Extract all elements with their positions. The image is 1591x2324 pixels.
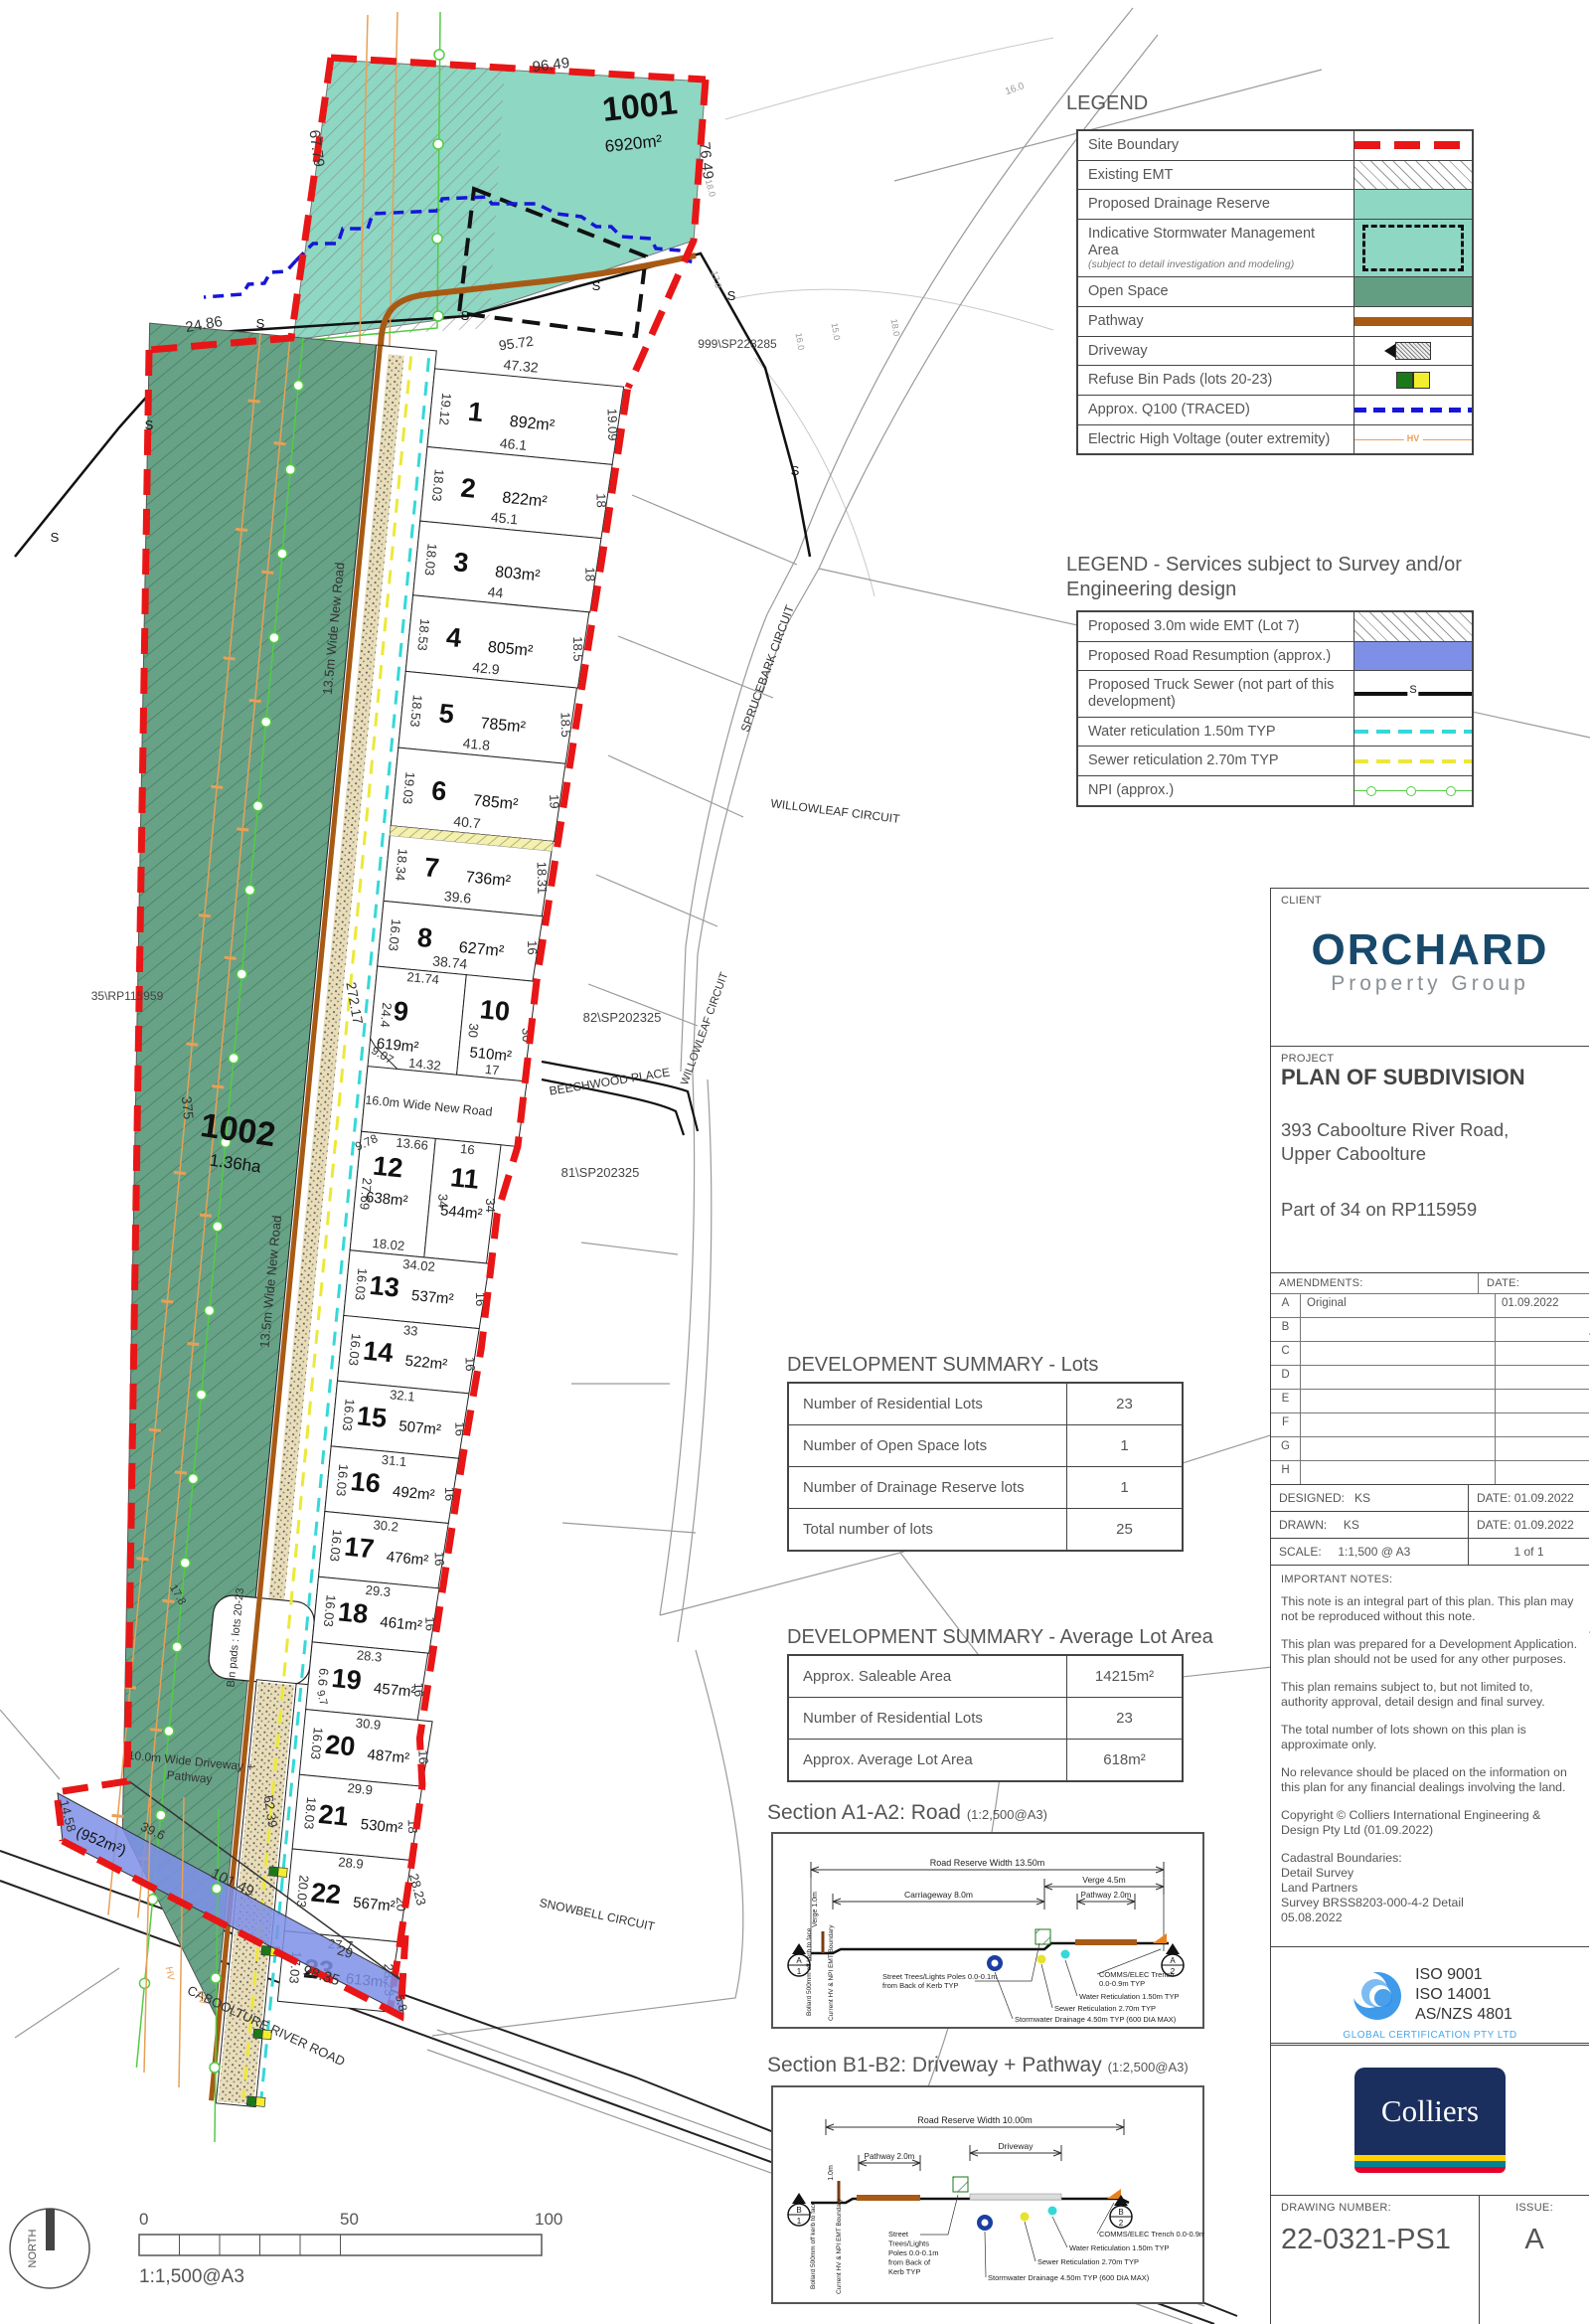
lot-number: 17 bbox=[343, 1532, 376, 1565]
legend-item: Refuse Bin Pads (lots 20-23) bbox=[1078, 365, 1472, 395]
amendment-cell: 01.09.2022 bbox=[1495, 1293, 1589, 1317]
legend-title: LEGEND bbox=[1066, 92, 1148, 115]
legend: Site BoundaryExisting EMTProposed Draina… bbox=[1076, 129, 1474, 455]
note-paragraph: Cadastral Boundaries: Detail Survey Land… bbox=[1281, 1851, 1579, 1925]
legend-item: Water reticulation 1.50m TYP bbox=[1078, 717, 1472, 747]
legend-item: NPI (approx.) bbox=[1078, 775, 1472, 805]
amendments-table: AOriginal01.09.2022BCDEFGH bbox=[1271, 1293, 1589, 1484]
section-dim-label: Carriageway 8.0m bbox=[904, 1890, 973, 1900]
section-marker-letter: B bbox=[796, 2206, 801, 2215]
summary-row-value: 618m² bbox=[1066, 1740, 1182, 1780]
summary-row-value: 23 bbox=[1066, 1384, 1182, 1424]
section-label: Current HV & NPI EMT Boundary bbox=[828, 1924, 835, 2021]
lot-dim-left: 18.03 bbox=[429, 468, 447, 502]
hv-tick bbox=[200, 1215, 212, 1216]
legend-item: Site Boundary bbox=[1078, 131, 1472, 160]
summary-row: Number of Residential Lots23 bbox=[789, 1697, 1182, 1739]
summary-row: Approx. Average Lot Area618m² bbox=[789, 1739, 1182, 1780]
npi-node bbox=[212, 1221, 223, 1232]
lot-dim-bottom: 42.9 bbox=[472, 659, 501, 678]
street-name: WILLOWLEAF CIRCUIT bbox=[679, 970, 730, 1086]
legend-item-label: Electric High Voltage (outer extremity) bbox=[1078, 425, 1353, 454]
section-label: Water Reticulation 1.50m TYP bbox=[1079, 1992, 1179, 2001]
sewer-s-label: S bbox=[145, 417, 154, 432]
driveway-bar bbox=[970, 2194, 1061, 2200]
lot-dim-top: 28.9 bbox=[338, 1854, 365, 1871]
important-notes: This note is an integral part of this pl… bbox=[1281, 1594, 1579, 1925]
npi-node bbox=[155, 1810, 166, 1821]
lot-number: 8 bbox=[416, 922, 434, 953]
lot-dim-bottom: 44 bbox=[487, 583, 504, 600]
npi-node bbox=[172, 1641, 183, 1652]
parcel-label: 81\SP202325 bbox=[561, 1165, 640, 1180]
lot-number: 4 bbox=[445, 622, 463, 653]
legend-item-label: Existing EMT bbox=[1078, 161, 1353, 190]
npi-node bbox=[139, 1978, 150, 1989]
section-dim-label: Pathway 2.0m bbox=[1081, 1891, 1132, 1900]
sewery-swatch bbox=[1353, 747, 1472, 775]
red-dash-swatch bbox=[1353, 131, 1472, 160]
lot-number: 16 bbox=[349, 1466, 382, 1499]
project-address-2: Upper Caboolture bbox=[1281, 1143, 1426, 1164]
npi-node bbox=[180, 1558, 191, 1569]
section-label: Sewer Reticulation 2.70m TYP bbox=[1037, 2257, 1139, 2266]
dimension-label: 95.72 bbox=[498, 333, 535, 354]
lot-number: 18 bbox=[337, 1596, 370, 1629]
npi-node bbox=[268, 632, 279, 643]
contour-label: 16.0 bbox=[794, 332, 807, 351]
section-marker-letter: B bbox=[1118, 2208, 1123, 2217]
lot-dim-left: 19.12 bbox=[436, 393, 454, 426]
section-label: Trees/Lights bbox=[888, 2240, 929, 2248]
sheet-count: 1 of 1 bbox=[1468, 1539, 1589, 1565]
amendment-cell: H bbox=[1271, 1460, 1301, 1484]
npi-node bbox=[293, 380, 304, 391]
lot-number: 14 bbox=[362, 1336, 395, 1369]
legend-item-label: Water reticulation 1.50m TYP bbox=[1078, 718, 1353, 747]
parcel-label: 82\SP202325 bbox=[583, 1010, 662, 1025]
npi-node bbox=[252, 800, 263, 811]
lot-dim-bottom: 39.6 bbox=[443, 888, 472, 907]
summary-lots-title: DEVELOPMENT SUMMARY - Lots bbox=[787, 1354, 1098, 1377]
lot-dim: 13.66 bbox=[396, 1135, 429, 1153]
legend-item-label: Driveway bbox=[1078, 337, 1353, 366]
summary-row-value: 14215m² bbox=[1066, 1656, 1182, 1697]
amendment-cell bbox=[1301, 1389, 1495, 1412]
sewer-s-swatch: S bbox=[1353, 671, 1472, 716]
summary-avg-table: Approx. Saleable Area14215m²Number of Re… bbox=[787, 1654, 1184, 1782]
amendment-cell: A bbox=[1271, 1293, 1301, 1317]
legend-item: Sewer reticulation 2.70m TYP bbox=[1078, 746, 1472, 775]
hv-tick bbox=[161, 1301, 173, 1302]
section-label: from Back of Kerb TYP bbox=[882, 1981, 959, 1990]
section-marker-number: 2 bbox=[1119, 2219, 1124, 2228]
section-dim-label: Driveway bbox=[999, 2141, 1034, 2151]
lot-dim-left: 16.03 bbox=[308, 1727, 326, 1760]
lot-dim-left: 16.03 bbox=[321, 1594, 339, 1628]
section-label: 1.0m bbox=[828, 2165, 835, 2181]
lot-dim-bottom: 38.74 bbox=[432, 952, 469, 971]
lot-number: 2 bbox=[459, 472, 477, 503]
lot-dim-right: 18.5 bbox=[557, 712, 573, 738]
summary-row-label: Number of Residential Lots bbox=[789, 1698, 1066, 1739]
sewer-s-label: S bbox=[461, 308, 470, 323]
lot-number: 11 bbox=[449, 1162, 480, 1195]
stormwater-dot-inner bbox=[982, 2220, 989, 2227]
water-dot bbox=[1048, 2207, 1057, 2216]
mint-dash-swatch bbox=[1353, 220, 1472, 276]
npi-node bbox=[260, 717, 271, 728]
lot-dim-left: 16.03 bbox=[346, 1333, 364, 1367]
summary-row-value: 1 bbox=[1066, 1467, 1182, 1508]
legend-item-label: Proposed Drainage Reserve bbox=[1078, 190, 1353, 219]
plan-sheet: 1892m²19.1246.119.0947.322822m²18.0345.1… bbox=[0, 0, 1591, 2324]
designed-date: DATE: 01.09.2022 bbox=[1468, 1485, 1589, 1511]
section-label: COMMS/ELEC Trench bbox=[1099, 1970, 1174, 1979]
lot-dim-right: 18 bbox=[593, 493, 608, 508]
drawing-number-label: DRAWING NUMBER: bbox=[1281, 2202, 1469, 2214]
legend-item-label: Pathway bbox=[1078, 307, 1353, 336]
section-marker-number: 1 bbox=[797, 2217, 802, 2226]
hatch-swatch bbox=[1353, 161, 1472, 190]
hv-tick bbox=[175, 1472, 187, 1473]
section-label: Bollard 500mm off kerb to face bbox=[810, 2201, 817, 2289]
drawn-value: KS bbox=[1344, 1518, 1359, 1532]
lot-dim-left: 18.03 bbox=[422, 543, 440, 577]
water-dot bbox=[1061, 1950, 1070, 1959]
svg-text:50: 50 bbox=[340, 2210, 359, 2229]
section-marker-letter: A bbox=[796, 1956, 802, 1965]
section-marker-number: 1 bbox=[797, 1967, 802, 1976]
refuse-bin-pad bbox=[268, 1867, 278, 1877]
street-name: WILLOWLEAF CIRCUIT bbox=[770, 796, 901, 826]
lot-dim-left: 19.03 bbox=[399, 771, 417, 805]
drawn-date: DATE: 01.09.2022 bbox=[1468, 1512, 1589, 1538]
amendment-cell: D bbox=[1271, 1365, 1301, 1389]
amendment-cell: E bbox=[1271, 1389, 1301, 1412]
sewer-s-label: S bbox=[592, 278, 601, 293]
amendment-cell bbox=[1301, 1460, 1495, 1484]
water-swatch bbox=[1353, 718, 1472, 747]
amendment-cell bbox=[1495, 1412, 1589, 1436]
legend-item-label: Indicative Stormwater Management Area(su… bbox=[1078, 220, 1353, 276]
summary-row-label: Number of Drainage Reserve lots bbox=[789, 1467, 1066, 1508]
section-label: Current HV & NPI EMT Boundary bbox=[836, 2198, 843, 2294]
legend-item-label: Proposed Truck Sewer (not part of this d… bbox=[1078, 671, 1353, 716]
svg-text:100: 100 bbox=[535, 2210, 562, 2229]
amendments-label: AMENDMENTS: bbox=[1271, 1273, 1478, 1293]
lot-dim-right: 16 bbox=[432, 1552, 447, 1567]
lot-dim-top: 33 bbox=[402, 1322, 418, 1338]
pathway-bar bbox=[1075, 1939, 1137, 1945]
section-label: from Back of bbox=[888, 2258, 931, 2267]
hv-swatch: HV bbox=[1353, 425, 1472, 454]
legend-item: Indicative Stormwater Management Area(su… bbox=[1078, 219, 1472, 276]
lot-number: 3 bbox=[452, 547, 470, 578]
lot-dim-bottom: 41.8 bbox=[462, 735, 491, 753]
amendment-cell bbox=[1495, 1341, 1589, 1365]
designed-value: KS bbox=[1354, 1491, 1370, 1505]
amendment-cell bbox=[1301, 1317, 1495, 1341]
lot-number: 6 bbox=[430, 775, 448, 806]
sewer-s-label: S bbox=[727, 288, 736, 303]
note-paragraph: No relevance should be placed on the inf… bbox=[1281, 1765, 1579, 1795]
hv-tick bbox=[149, 1429, 161, 1430]
svg-text:0: 0 bbox=[139, 2210, 148, 2229]
npi-node bbox=[237, 969, 247, 980]
lot-reference: Part of 34 on RP115959 bbox=[1281, 1198, 1579, 1222]
lot-dim-top: 34.02 bbox=[402, 1256, 436, 1274]
note-paragraph: This note is an integral part of this pl… bbox=[1281, 1594, 1579, 1624]
designed-label: DESIGNED: bbox=[1279, 1491, 1345, 1505]
section-label: 0.0-0.9m TYP bbox=[1099, 1979, 1145, 1988]
lot-dim-top: 30.2 bbox=[373, 1517, 399, 1534]
lot-number: 20 bbox=[324, 1730, 357, 1762]
refuse-bin-pad bbox=[261, 1945, 271, 1955]
lot-dim: 24.4 bbox=[378, 1002, 395, 1029]
lot-dim-left: 18.53 bbox=[407, 694, 425, 728]
section-label: Stormwater Drainage 4.50m TYP (600 DIA M… bbox=[1015, 2015, 1177, 2024]
amendment-cell: G bbox=[1271, 1436, 1301, 1460]
section-label: Street bbox=[888, 2230, 909, 2239]
hv-tick bbox=[212, 1086, 224, 1087]
amendment-cell bbox=[1495, 1317, 1589, 1341]
lot-dim-left: 6.6 bbox=[315, 1667, 332, 1686]
hv-tick bbox=[186, 1044, 198, 1045]
amendment-cell bbox=[1495, 1460, 1589, 1484]
colliers-logo: Colliers bbox=[1354, 2068, 1506, 2155]
lot-dim-left: 16.03 bbox=[333, 1463, 351, 1497]
lot-dim-bottom: 46.1 bbox=[499, 434, 528, 453]
parcel-label: 999\SP228285 bbox=[698, 337, 777, 351]
as-nzs-4801: AS/NZS 4801 bbox=[1415, 2005, 1512, 2025]
lot-dim: 17 bbox=[484, 1062, 500, 1078]
legend-item-label: NPI (approx.) bbox=[1078, 776, 1353, 805]
npi-node bbox=[196, 1390, 207, 1401]
section-marker-letter: A bbox=[1170, 1956, 1176, 1965]
lot-number: 15 bbox=[356, 1401, 389, 1433]
dimension-label: 96.49 bbox=[532, 55, 570, 76]
legend-item: Proposed 3.0m wide EMT (Lot 7) bbox=[1078, 612, 1472, 641]
scale-value: 1:1,500 @ A3 bbox=[1338, 1545, 1410, 1559]
lot-dim-bottom: 45.1 bbox=[490, 509, 519, 528]
dimension-label: 375 bbox=[179, 1095, 197, 1120]
hv-tick bbox=[225, 957, 237, 958]
lot-dim-left: 16.03 bbox=[340, 1398, 358, 1431]
lot-dim-left: 18.34 bbox=[393, 848, 410, 882]
summary-lots-table: Number of Residential Lots23Number of Op… bbox=[787, 1382, 1184, 1552]
brown-swatch bbox=[1353, 307, 1472, 336]
iso-9001: ISO 9001 bbox=[1415, 1965, 1512, 1985]
lot-dim: 30 bbox=[465, 1023, 481, 1039]
sewer-s-label: S bbox=[256, 316, 265, 331]
lot-dim: 18.02 bbox=[372, 1236, 405, 1253]
npi-node bbox=[277, 549, 288, 560]
summary-row-value: 25 bbox=[1066, 1509, 1182, 1550]
section-label: Sewer Reticulation 2.70m TYP bbox=[1054, 2004, 1156, 2013]
amendment-cell bbox=[1495, 1436, 1589, 1460]
amendment-cell bbox=[1301, 1341, 1495, 1365]
section-label: Stormwater Drainage 4.50m TYP (600 DIA M… bbox=[988, 2273, 1150, 2282]
legend-item: Open Space bbox=[1078, 276, 1472, 306]
section-a-title: Section A1-A2: Road (1:2,500@A3) bbox=[767, 1801, 1047, 1825]
npi-node bbox=[204, 1305, 215, 1316]
summary-row-label: Number of Open Space lots bbox=[789, 1425, 1066, 1466]
lot-dim: 34 bbox=[483, 1198, 498, 1213]
issue-value: A bbox=[1490, 2224, 1579, 2256]
street-name: SPRUCEBARK CIRCUIT bbox=[738, 602, 797, 734]
npi-node bbox=[163, 1726, 174, 1737]
legend-item: Electric High Voltage (outer extremity)H… bbox=[1078, 424, 1472, 454]
street-tree bbox=[953, 2177, 968, 2192]
section-label: Bollard 500mm off kerb to face bbox=[806, 1927, 813, 2016]
lot-number: 13 bbox=[368, 1270, 400, 1303]
section-label: Kerb TYP bbox=[888, 2267, 920, 2276]
hatch-swatch bbox=[1353, 612, 1472, 641]
note-paragraph: This plan was prepared for a Development… bbox=[1281, 1637, 1579, 1667]
note-paragraph: Copyright © Colliers International Engin… bbox=[1281, 1808, 1579, 1838]
lot-number: 10 bbox=[479, 994, 512, 1027]
lot-number: 19 bbox=[330, 1663, 363, 1696]
legend-item-label: Proposed 3.0m wide EMT (Lot 7) bbox=[1078, 612, 1353, 641]
summary-row: Number of Drainage Reserve lots1 bbox=[789, 1466, 1182, 1508]
contour-label: 18.0 bbox=[704, 178, 717, 198]
lot-dim-left: 16.03 bbox=[386, 918, 403, 952]
lot-number: 7 bbox=[423, 852, 441, 883]
section-b-diagram: Road Reserve Width 10.00m1.0mPathway 2.0… bbox=[771, 2085, 1204, 2304]
lot-dim-left: 16.03 bbox=[352, 1267, 370, 1301]
section-label: Street Trees/Lights Poles 0.0-0.1m bbox=[882, 1972, 997, 1981]
section-dim-label: Pathway 2.0m bbox=[865, 2152, 915, 2161]
amendment-cell: Original bbox=[1301, 1293, 1495, 1317]
orchard-logo: ORCHARD bbox=[1281, 928, 1579, 972]
hv-label: HV bbox=[163, 1966, 176, 1982]
refuse-bin-pad bbox=[255, 2097, 265, 2107]
project-label: PROJECT bbox=[1281, 1053, 1579, 1065]
section-label: COMMS/ELEC Trench 0.0-0.9m TYP bbox=[1099, 2230, 1204, 2239]
bins-swatch bbox=[1353, 366, 1472, 395]
summary-row: Number of Open Space lots1 bbox=[789, 1424, 1182, 1466]
npi-node bbox=[285, 464, 296, 475]
orchard-logo-sub: Property Group bbox=[1281, 972, 1579, 996]
hv-tick bbox=[248, 401, 260, 402]
summary-row: Number of Residential Lots23 bbox=[789, 1384, 1182, 1424]
lot-dim-top: 32.1 bbox=[390, 1387, 416, 1404]
lot-dim-top: 30.9 bbox=[355, 1716, 382, 1733]
legend-services: Proposed 3.0m wide EMT (Lot 7)Proposed R… bbox=[1076, 610, 1474, 807]
lot-dim-right: 18.5 bbox=[570, 636, 586, 662]
pathway-bar bbox=[857, 2195, 920, 2201]
lot-number: 1 bbox=[467, 397, 485, 427]
summary-row-value: 1 bbox=[1066, 1425, 1182, 1466]
npi-node bbox=[244, 885, 255, 896]
amendment-cell bbox=[1495, 1365, 1589, 1389]
legend-item-label: Sewer reticulation 2.70m TYP bbox=[1078, 747, 1353, 775]
legend-item: Existing EMT bbox=[1078, 160, 1472, 190]
hv-tick bbox=[163, 1600, 175, 1601]
drawing-number: 22-0321-PS1 bbox=[1281, 2224, 1469, 2256]
refuse-bin-pad bbox=[277, 1868, 287, 1878]
amendment-cell bbox=[1301, 1412, 1495, 1436]
green-swatch bbox=[1353, 277, 1472, 306]
street-name: SNOWBELL CIRCUIT bbox=[539, 1896, 657, 1933]
hv-tick bbox=[274, 443, 286, 444]
section-dim-label: Road Reserve Width 10.00m bbox=[917, 2115, 1033, 2125]
legend-item-label: Proposed Road Resumption (approx.) bbox=[1078, 642, 1353, 671]
scale-bar: 0 50 100 1:1,500@A3 bbox=[139, 2210, 562, 2287]
hv-tick bbox=[211, 786, 223, 787]
summary-avg-title: DEVELOPMENT SUMMARY - Average Lot Area bbox=[787, 1626, 1213, 1649]
svg-text:NORTH: NORTH bbox=[27, 2229, 39, 2267]
title-block: CLIENT ORCHARD Property Group PROJECT PL… bbox=[1270, 888, 1589, 2324]
stormwater-dot-inner bbox=[992, 1960, 999, 1967]
lot-dim-top: 47.32 bbox=[503, 356, 540, 375]
parcel-label: 35\RP115959 bbox=[91, 989, 164, 1003]
hv-tick bbox=[136, 1559, 148, 1560]
hv-label: HV bbox=[195, 1990, 208, 2006]
iso-14001: ISO 14001 bbox=[1415, 1985, 1512, 2005]
lot-number: 12 bbox=[372, 1151, 404, 1184]
hv-tick bbox=[187, 1343, 199, 1344]
important-notes-label: IMPORTANT NOTES: bbox=[1281, 1574, 1579, 1586]
lot-dim-right: 18.31 bbox=[535, 862, 551, 895]
legend-item: Approx. Q100 (TRACED) bbox=[1078, 395, 1472, 424]
lot-dim-right: 19 bbox=[547, 794, 561, 809]
legend-services-title: LEGEND - Services subject to Survey and/… bbox=[1066, 553, 1464, 602]
lot-dim-top: 29.3 bbox=[365, 1582, 392, 1599]
section-label: Verge 1.0m bbox=[812, 1892, 819, 1927]
lot-dim-top: 29.9 bbox=[347, 1780, 374, 1797]
q100-swatch bbox=[1353, 396, 1472, 424]
summary-row-label: Approx. Saleable Area bbox=[789, 1656, 1066, 1697]
note-paragraph: This plan remains subject to, but not li… bbox=[1281, 1680, 1579, 1710]
legend-item: Proposed Drainage Reserve bbox=[1078, 189, 1472, 219]
lot-dim-left: 16.03 bbox=[327, 1529, 345, 1563]
hv-tick bbox=[249, 700, 261, 701]
hv-tick bbox=[150, 1730, 162, 1731]
legend-item: Driveway bbox=[1078, 336, 1472, 366]
legend-item: Proposed Truck Sewer (not part of this d… bbox=[1078, 670, 1472, 716]
lot-dim: 21.74 bbox=[406, 969, 440, 987]
turning-head bbox=[207, 1593, 316, 1686]
summary-row-label: Number of Residential Lots bbox=[789, 1384, 1066, 1424]
drawn-label: DRAWN: bbox=[1279, 1518, 1327, 1532]
amendment-cell: F bbox=[1271, 1412, 1301, 1436]
contour-label: 15.0 bbox=[830, 322, 843, 341]
hv-tick bbox=[237, 829, 248, 830]
contour-label: 18.0 bbox=[889, 318, 902, 337]
lot-dim-right: 16 bbox=[463, 1357, 478, 1372]
npi-node bbox=[188, 1473, 199, 1484]
amendment-cell: B bbox=[1271, 1317, 1301, 1341]
contour-label: 17.0 bbox=[710, 269, 723, 289]
lot-dim: 16 bbox=[460, 1141, 476, 1157]
lot-number: 5 bbox=[437, 698, 455, 729]
section-dim-label: Road Reserve Width 13.50m bbox=[930, 1858, 1045, 1868]
amendment-cell bbox=[1495, 1389, 1589, 1412]
summary-row-value: 23 bbox=[1066, 1698, 1182, 1739]
amendment-cell bbox=[1301, 1365, 1495, 1389]
q100-line-tail bbox=[204, 260, 296, 297]
lot-1001-number: 1001 bbox=[600, 83, 679, 129]
colliers-stripe-red bbox=[1354, 2167, 1506, 2173]
section-dim-label: Verge 4.5m bbox=[1082, 1875, 1125, 1885]
sewer-s-label: S bbox=[791, 463, 800, 478]
svg-text:1:1,500@A3: 1:1,500@A3 bbox=[139, 2266, 244, 2287]
summary-row-label: Approx. Average Lot Area bbox=[789, 1740, 1066, 1780]
amendments-date-label: DATE: bbox=[1478, 1273, 1589, 1293]
mint-swatch bbox=[1353, 190, 1472, 219]
